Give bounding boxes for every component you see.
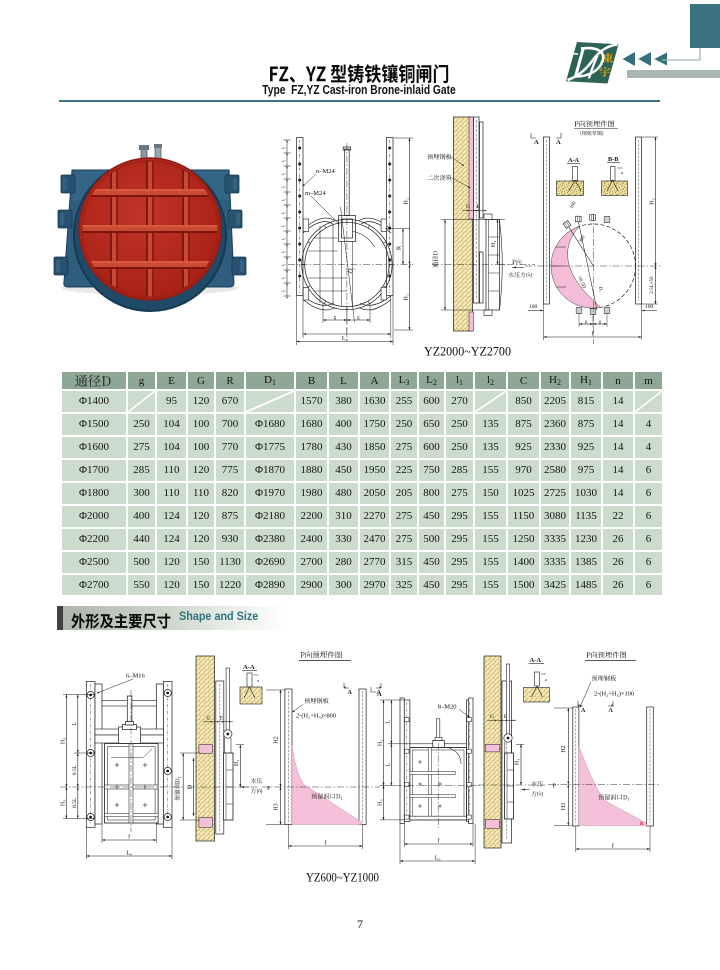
svg-text:l₂: l₂	[281, 159, 286, 162]
svg-text:2-(H₂+H₃)×800: 2-(H₂+H₃)×800	[296, 713, 336, 720]
svg-text:l₂: l₂	[281, 289, 286, 292]
svg-text:100: 100	[645, 304, 654, 310]
svg-text:l₂: l₂	[281, 276, 286, 279]
svg-text:B-B: B-B	[608, 156, 618, 163]
svg-text:g: g	[599, 319, 602, 324]
svg-text:l₂: l₂	[281, 185, 286, 188]
svg-text:8–M20: 8–M20	[438, 704, 457, 711]
svg-text:l₂: l₂	[281, 146, 286, 149]
svg-text:A: A	[556, 139, 561, 146]
svg-text:l₂: l₂	[281, 172, 286, 175]
svg-text:H₃: H₃	[59, 799, 66, 806]
svg-text:l₂: l₂	[281, 198, 286, 201]
svg-text:f: f	[438, 838, 441, 845]
svg-text:f: f	[128, 834, 131, 841]
svg-text:0.5L: 0.5L	[72, 797, 78, 808]
svg-text:H₁: H₁	[491, 241, 497, 247]
svg-text:H₂: H₂	[650, 198, 656, 204]
svg-text:A: A	[609, 708, 614, 714]
svg-text:L: L	[384, 720, 391, 724]
svg-text:YZ2000~YZ2700: YZ2000~YZ2700	[424, 344, 511, 359]
svg-text:g: g	[585, 319, 588, 324]
svg-text:l₂: l₂	[281, 250, 286, 253]
svg-text:6–M16: 6–M16	[126, 673, 146, 680]
svg-text:a: a	[545, 677, 547, 682]
svg-text:H₁: H₁	[515, 759, 521, 765]
svg-text:H₂: H₂	[377, 739, 384, 746]
svg-text:l₂: l₂	[281, 224, 286, 227]
svg-text:2-(H₂+H₃)×100: 2-(H₂+H₃)×100	[594, 691, 634, 698]
svg-text:H₂: H₂	[59, 737, 66, 744]
svg-text:A: A	[534, 139, 539, 146]
svg-text:f: f	[324, 840, 327, 847]
svg-text:A: A	[348, 690, 353, 696]
svg-text:H3: H3	[560, 803, 567, 811]
svg-text:2.5L+50: 2.5L+50	[650, 276, 655, 294]
svg-text:A-A: A-A	[530, 657, 542, 664]
svg-text:G: G	[490, 714, 494, 720]
svg-text:L₀: L₀	[435, 855, 441, 862]
svg-text:H3: H3	[273, 803, 280, 811]
svg-text:n–M24: n–M24	[316, 168, 336, 175]
svg-text:D: D	[188, 784, 194, 789]
svg-text:a: a	[621, 170, 623, 175]
svg-text:YZ600~YZ1000: YZ600~YZ1000	[306, 870, 379, 885]
svg-text:H₃: H₃	[403, 294, 409, 300]
svg-text:f: f	[612, 843, 615, 850]
svg-text:D₁: D₁	[347, 265, 357, 275]
svg-text:P: P	[267, 785, 271, 792]
svg-text:0.5L: 0.5L	[72, 764, 78, 775]
svg-text:L: L	[71, 722, 78, 726]
svg-text:H₁: H₁	[234, 760, 240, 766]
svg-text:m–M24: m–M24	[305, 190, 326, 197]
svg-text:H2: H2	[560, 745, 567, 753]
svg-text:L₄: L₄	[342, 336, 348, 342]
svg-text:300: 300	[578, 235, 586, 244]
svg-text:100: 100	[569, 201, 577, 210]
svg-text:G: G	[207, 716, 211, 722]
svg-text:A: A	[377, 691, 382, 698]
svg-text:l₂: l₂	[281, 237, 286, 240]
svg-text:A: A	[581, 708, 586, 714]
svg-text:a: a	[257, 678, 259, 683]
svg-text:G: G	[466, 204, 470, 210]
svg-text:L: L	[384, 763, 391, 767]
svg-text:H₂: H₂	[403, 198, 409, 204]
svg-text:A-A: A-A	[568, 157, 580, 164]
svg-text:H₃: H₃	[377, 799, 384, 806]
svg-text:l₂: l₂	[281, 211, 286, 214]
svg-text:100: 100	[529, 304, 538, 310]
svg-text:D₁: D₁	[597, 286, 603, 293]
svg-text:R: R	[396, 245, 403, 250]
svg-text:P: P	[553, 783, 557, 790]
svg-text:A-A: A-A	[243, 664, 255, 671]
svg-text:L₀: L₀	[126, 850, 132, 857]
svg-text:H2: H2	[273, 736, 280, 744]
svg-text:f: f	[346, 328, 348, 335]
svg-text:l₂: l₂	[281, 263, 286, 266]
